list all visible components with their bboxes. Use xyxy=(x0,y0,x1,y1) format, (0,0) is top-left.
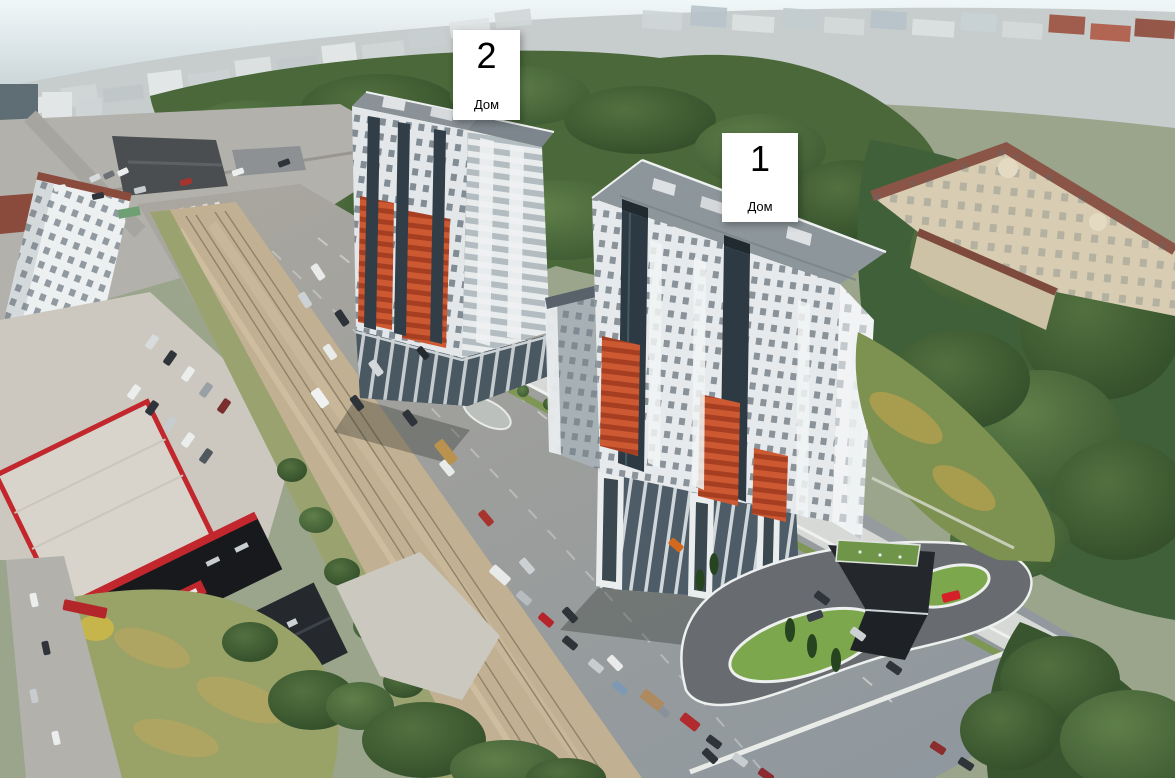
label-building-1: 1 Дом xyxy=(722,133,798,222)
mid-annex xyxy=(545,286,600,470)
building-1-caption: Дом xyxy=(747,200,772,213)
building-2-number: 2 xyxy=(476,38,496,74)
aerial-photo xyxy=(0,0,1175,778)
aerial-render-view: 2 Дом 1 Дом xyxy=(0,0,1175,778)
building-1-orange-a xyxy=(600,336,640,456)
building-2-caption: Дом xyxy=(474,98,499,111)
building-1-number: 1 xyxy=(750,141,770,177)
green-roof-terrace xyxy=(836,540,920,566)
building-1-orange-c xyxy=(752,448,788,522)
building-2-wing xyxy=(462,130,550,358)
label-building-2: 2 Дом xyxy=(453,30,520,120)
